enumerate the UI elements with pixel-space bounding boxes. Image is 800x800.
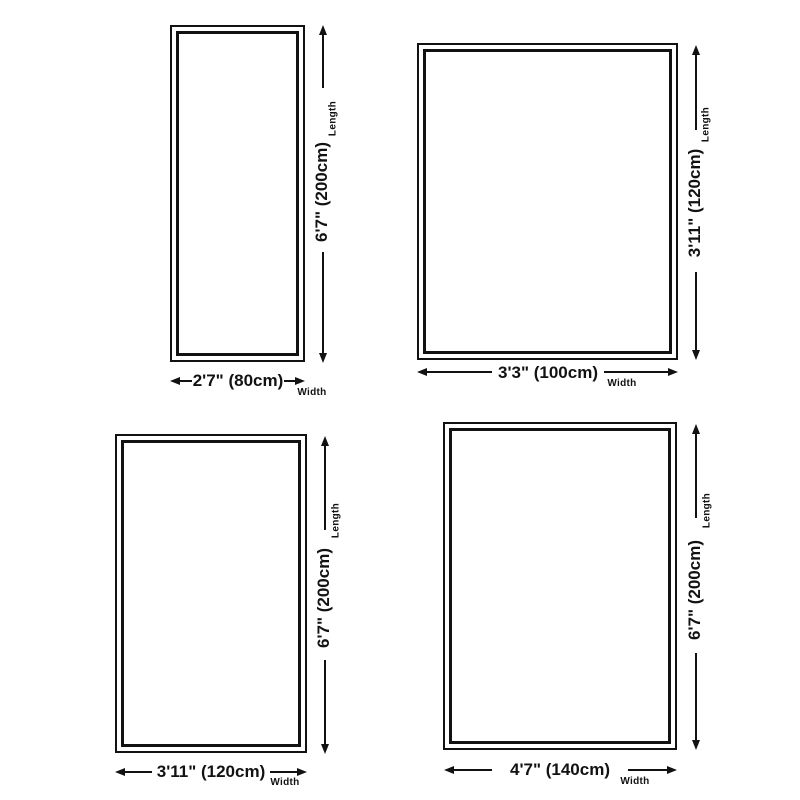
arrow-up-icon [692, 424, 700, 434]
width-axis-label: Width [605, 775, 665, 788]
width-dimension-line-right [628, 769, 667, 771]
arrow-left-icon [444, 766, 454, 774]
rug-outline [443, 422, 677, 750]
rug-size-diagram-bottom-right: Length 6'7" (200cm) 4'7" (140cm) Width [0, 0, 800, 800]
length-dimension-line-lower [695, 653, 697, 740]
arrow-right-icon [667, 766, 677, 774]
rug-size-chart-canvas: Length 6'7" (200cm) 2'7" (80cm) Width Le… [0, 0, 800, 800]
arrow-down-icon [692, 740, 700, 750]
rug-inner-border [449, 428, 671, 744]
